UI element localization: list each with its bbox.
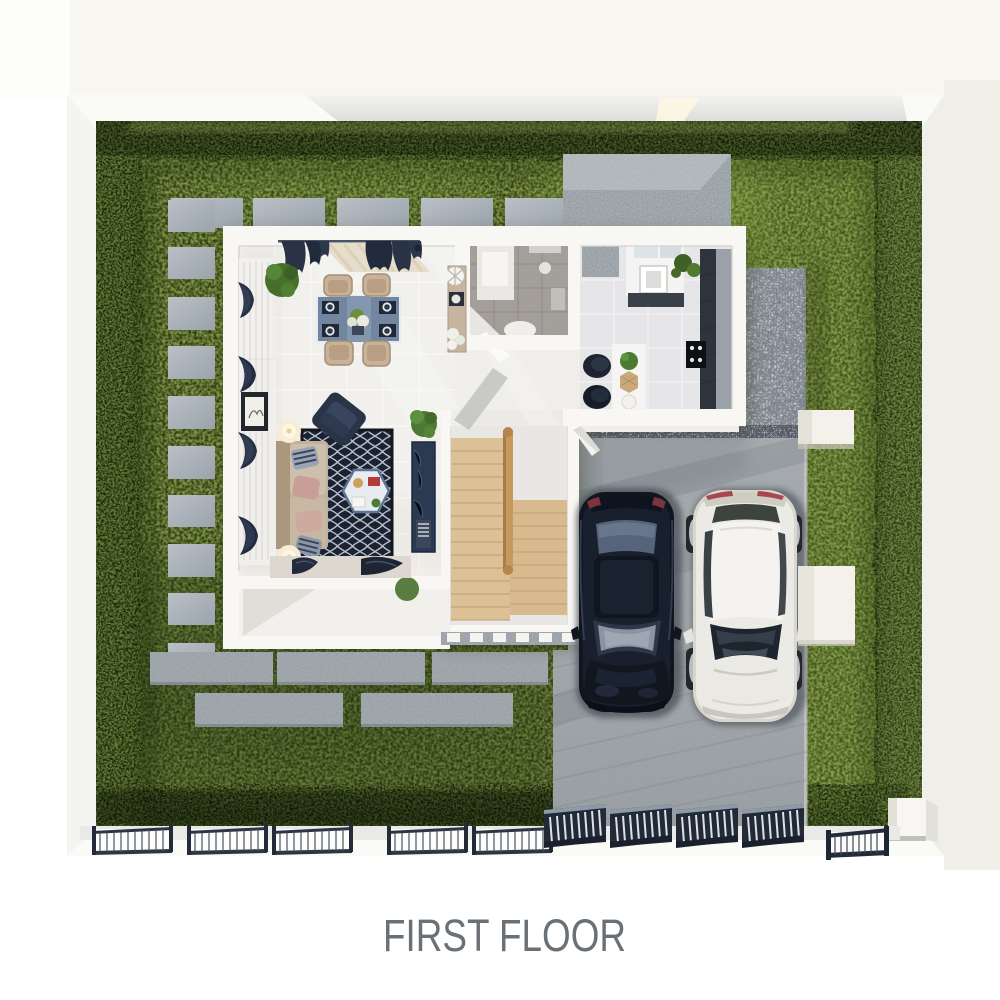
svg-text:FIRST FLOOR: FIRST FLOOR [383, 910, 626, 961]
